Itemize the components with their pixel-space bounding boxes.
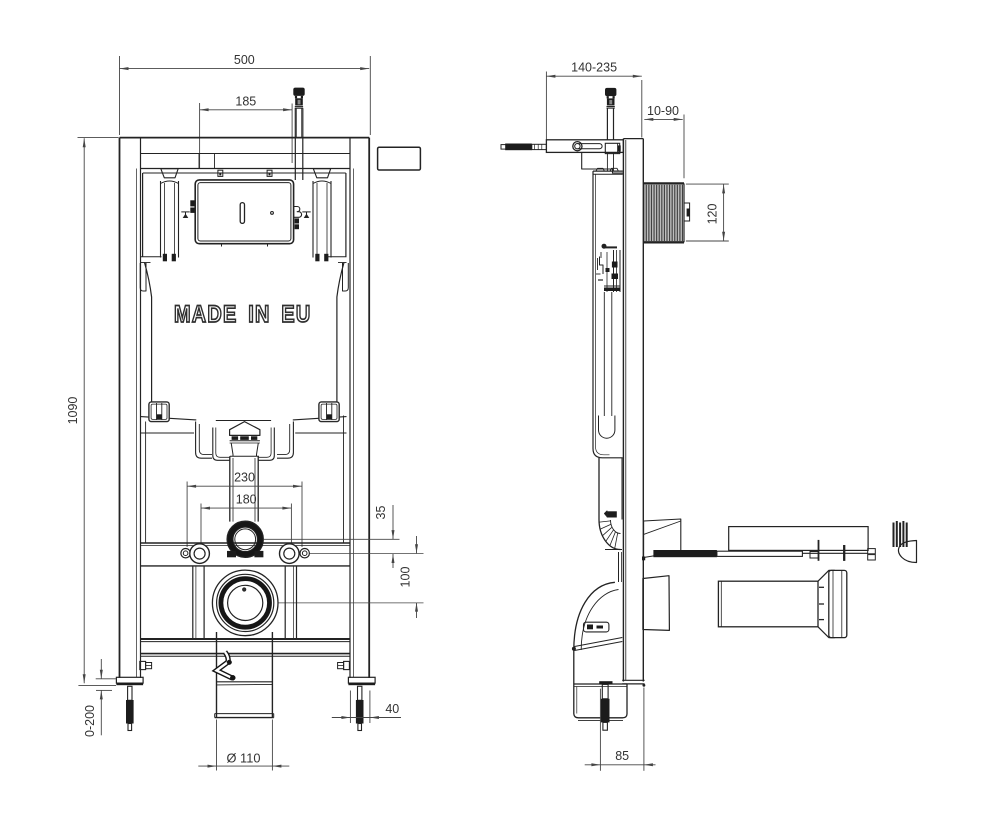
svg-text:100: 100 xyxy=(399,567,413,588)
svg-text:MADE IN EU: MADE IN EU xyxy=(174,301,312,328)
svg-text:40: 40 xyxy=(385,702,399,716)
svg-text:Ø 110: Ø 110 xyxy=(227,751,261,766)
svg-text:10-90: 10-90 xyxy=(647,104,679,118)
svg-text:180: 180 xyxy=(236,493,257,507)
svg-text:185: 185 xyxy=(235,94,256,108)
svg-text:85: 85 xyxy=(615,749,629,763)
svg-text:230: 230 xyxy=(234,471,255,485)
svg-text:1090: 1090 xyxy=(66,397,80,425)
svg-text:120: 120 xyxy=(705,204,719,225)
svg-text:35: 35 xyxy=(374,506,388,520)
svg-text:0-200: 0-200 xyxy=(83,705,97,737)
svg-text:500: 500 xyxy=(234,53,255,67)
svg-text:140-235: 140-235 xyxy=(571,61,617,75)
